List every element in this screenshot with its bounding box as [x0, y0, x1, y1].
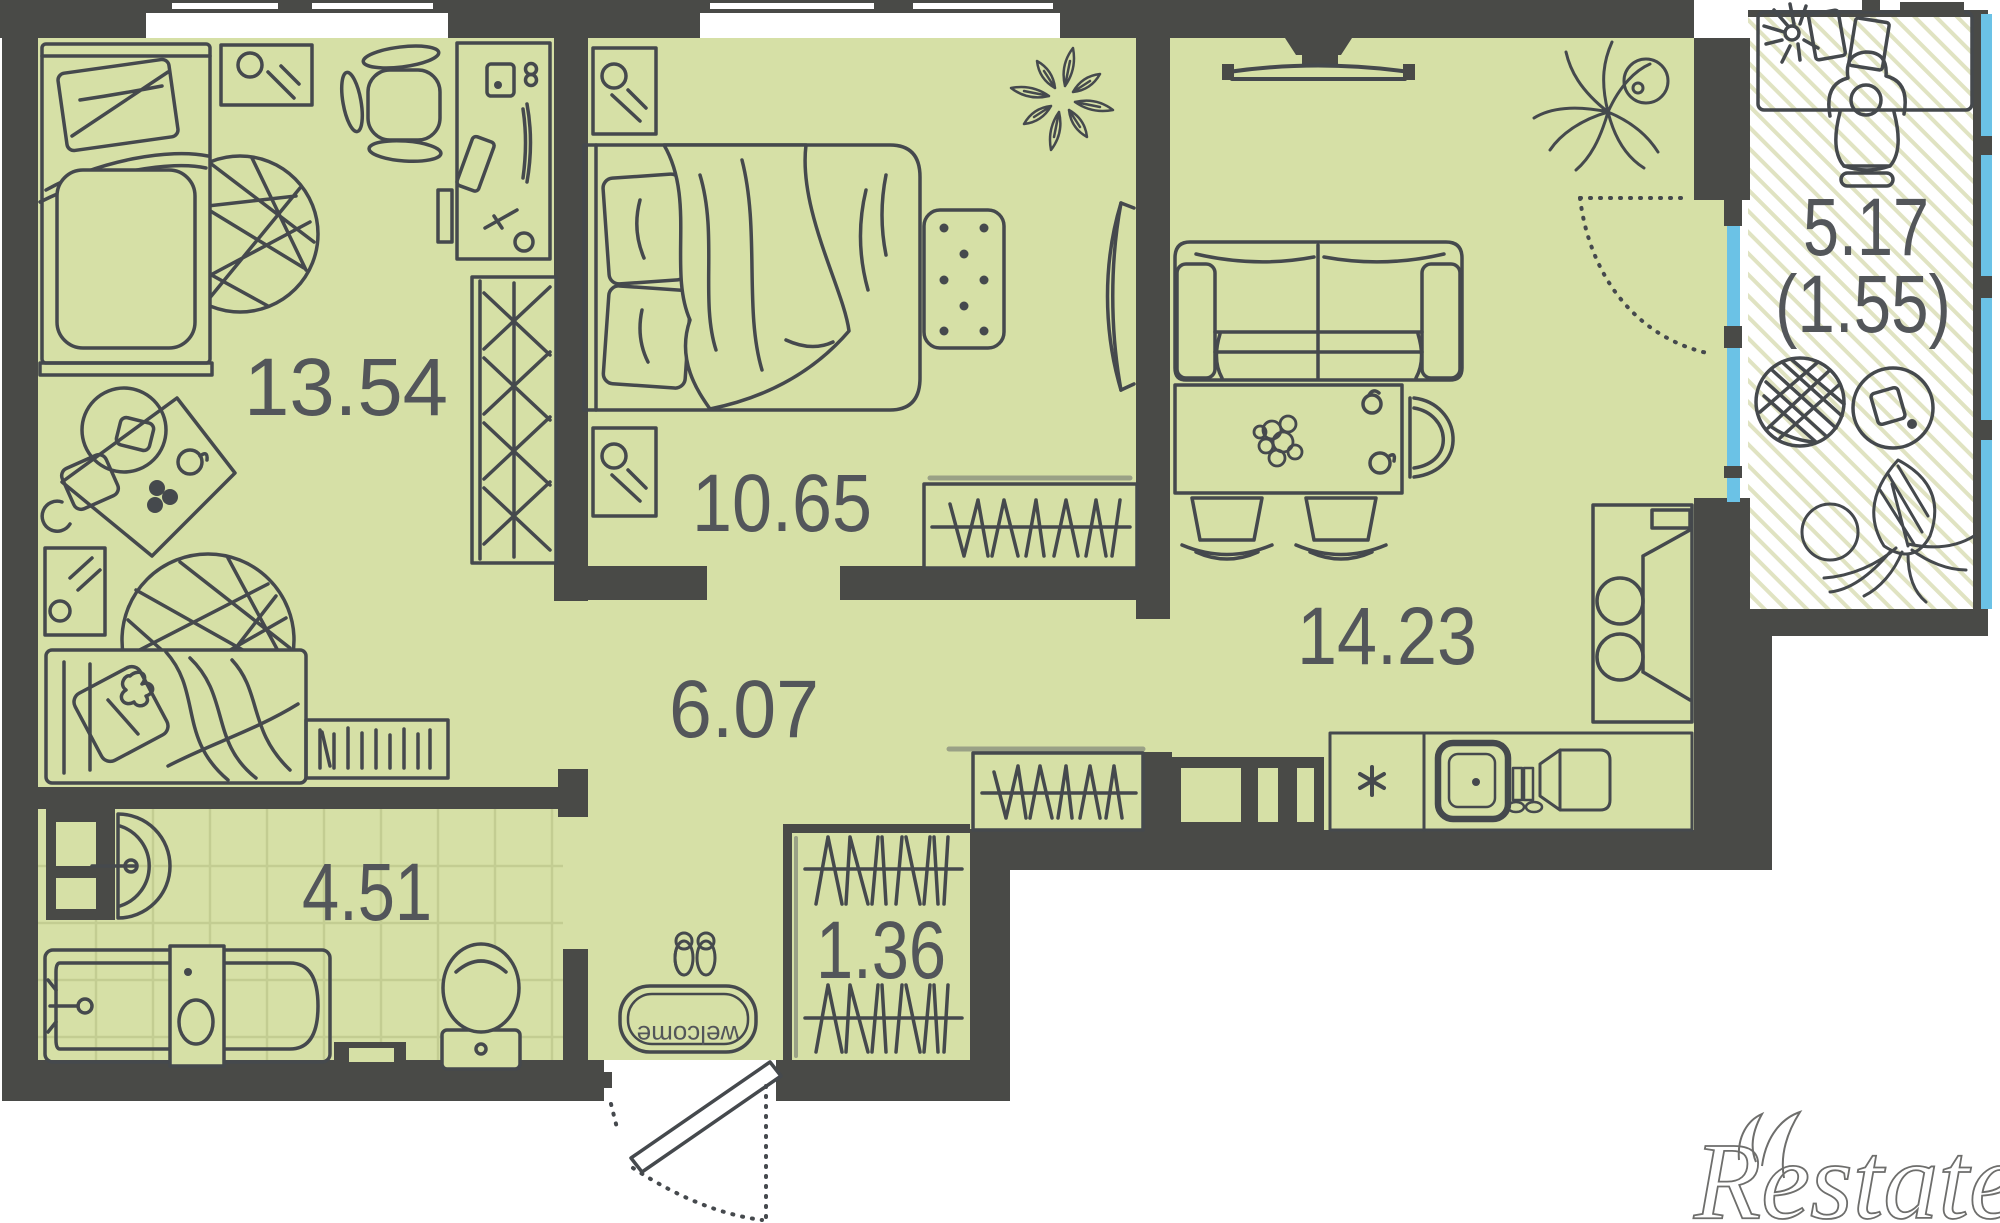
svg-text:1.36: 1.36: [816, 905, 946, 996]
svg-text:welcome: welcome: [637, 1020, 741, 1050]
svg-text:13.54: 13.54: [244, 342, 448, 433]
svg-text:4.51: 4.51: [302, 847, 432, 938]
svg-text:6.07: 6.07: [669, 664, 819, 755]
svg-text:14.23: 14.23: [1297, 591, 1477, 682]
svg-text:Restate: Restate: [1693, 1120, 2000, 1223]
svg-text:(1.55): (1.55): [1775, 259, 1951, 350]
svg-text:10.65: 10.65: [692, 458, 872, 549]
